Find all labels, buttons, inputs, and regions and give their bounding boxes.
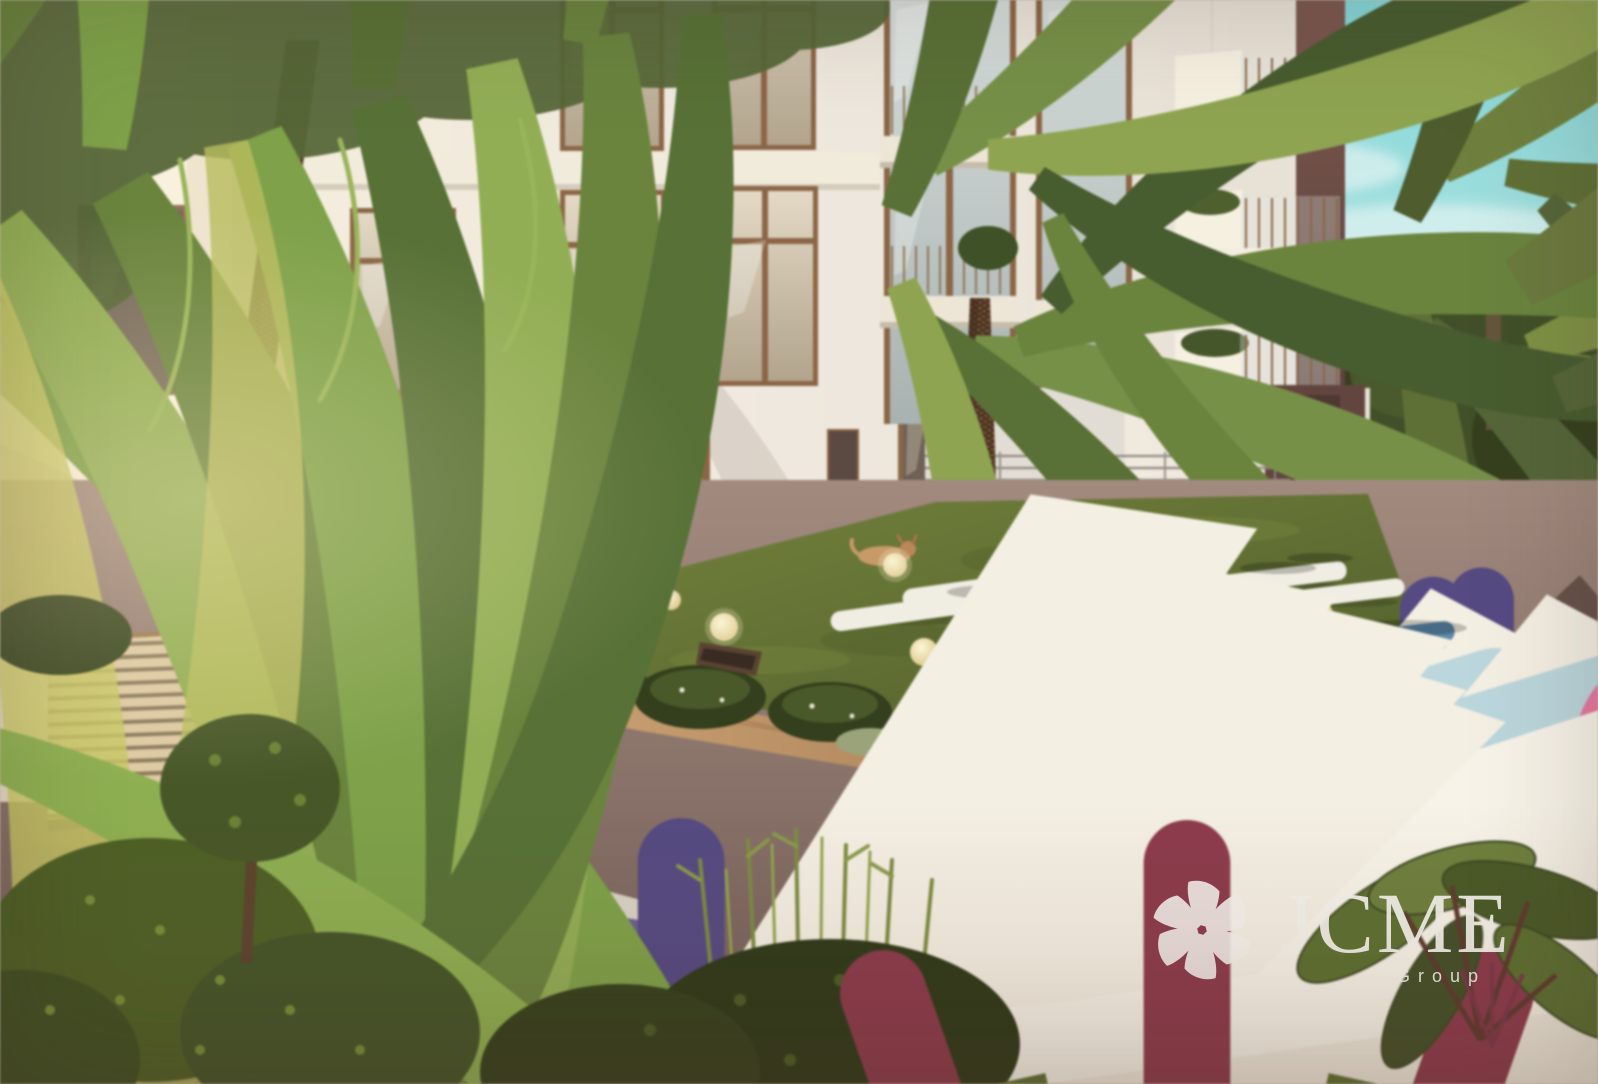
brand-name: JCME (1280, 880, 1490, 966)
brand-subtitle: Group (1278, 966, 1486, 987)
pinwheel-flower-icon (1148, 876, 1256, 984)
jcme-watermark: JCME Group (1128, 866, 1500, 1006)
rendering-canvas: JCME Group (0, 0, 1598, 1084)
